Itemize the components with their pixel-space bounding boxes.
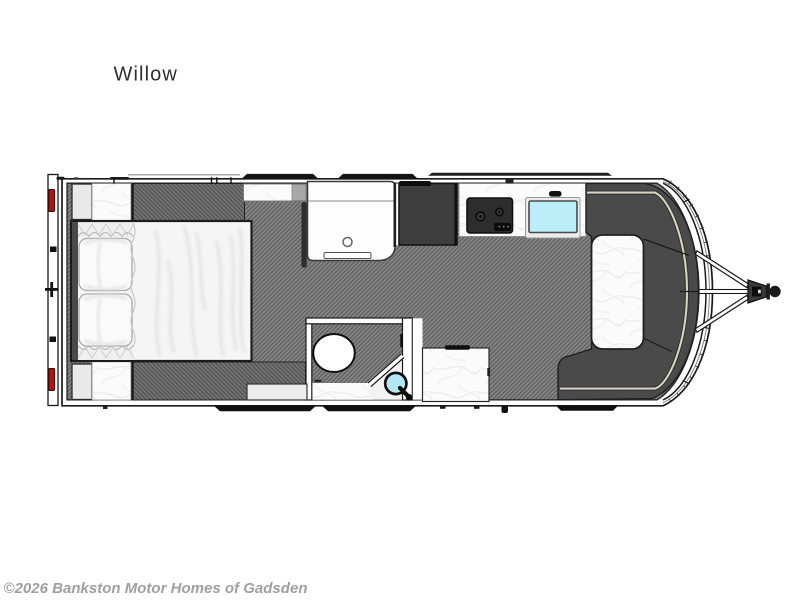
svg-text:©2026 Bankston Motor Homes of: ©2026 Bankston Motor Homes of Gadsden (4, 581, 308, 597)
svg-text:Willow: Willow (114, 64, 178, 86)
